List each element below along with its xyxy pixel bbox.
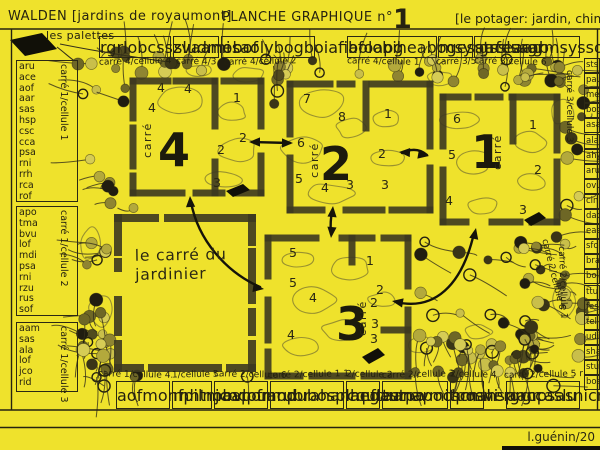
plant-code: sof bbox=[19, 305, 75, 316]
plant-code: msy bbox=[544, 38, 577, 57]
top-group-box: rgrlobcsszvaami bbox=[99, 36, 171, 58]
carre-3-cell-label: 3 bbox=[371, 316, 379, 331]
flower-dot bbox=[520, 278, 530, 288]
flower-dot bbox=[525, 321, 538, 334]
flower-dot bbox=[530, 260, 540, 270]
flower-dot bbox=[105, 198, 116, 209]
right-code-box: eae bbox=[584, 224, 600, 239]
arrowhead-icon bbox=[185, 196, 195, 207]
right-code-box: stu bbox=[584, 360, 600, 375]
right-code-box: sts bbox=[584, 58, 600, 73]
carre-3-cell-label: 4 bbox=[287, 327, 295, 342]
flower-dot bbox=[554, 77, 563, 86]
cell-caption: carré 1/cellule 2 bbox=[58, 210, 69, 287]
author-signature: l.guénin/20 bbox=[527, 430, 595, 444]
carre-1-cell-label: 6 bbox=[453, 111, 461, 126]
plant-code: obi bbox=[372, 38, 396, 57]
plant-code: rgr bbox=[521, 38, 544, 57]
plant-code: bos bbox=[307, 386, 335, 405]
flower-dot bbox=[121, 84, 130, 93]
carre-2-cell-label: 8 bbox=[338, 109, 346, 124]
flower-dot bbox=[415, 248, 428, 261]
flower-dot bbox=[270, 99, 279, 108]
carre-4-cell-label: 3 bbox=[213, 175, 221, 190]
flower-dot bbox=[521, 73, 530, 82]
right-code-box: bog bbox=[584, 103, 600, 118]
carre-3-cell-label: 5 bbox=[289, 275, 297, 290]
flower-dot bbox=[97, 349, 110, 362]
cell-caption: carré 4/cellule 4 bbox=[99, 56, 172, 68]
plant-code: css bbox=[147, 38, 172, 57]
flower-dot bbox=[135, 66, 148, 79]
bottom-group-box: aanpsasnicnurusstu bbox=[506, 381, 580, 409]
carre-2-numeral: 2 bbox=[320, 137, 352, 191]
plant-code: slu bbox=[174, 38, 197, 57]
arrowhead-icon bbox=[326, 227, 336, 239]
plant-code: hea bbox=[397, 38, 427, 57]
flower-dot bbox=[96, 339, 106, 349]
carre-4-word: carré bbox=[141, 122, 154, 158]
top-group-box: stsslurgrmsyssophfpfrovucinapo bbox=[474, 36, 580, 58]
right-code-box: asa bbox=[584, 118, 600, 133]
flower-dot bbox=[90, 293, 103, 306]
right-code-box: ahy bbox=[584, 149, 600, 164]
right-code-box: sha bbox=[584, 345, 600, 360]
contour-blob bbox=[218, 102, 246, 120]
carre-2-word: carré bbox=[308, 142, 321, 178]
carre-2-cell-label: 1 bbox=[384, 106, 392, 121]
plant-code: rca bbox=[19, 181, 75, 192]
left-group-box: aamsasalalofjcoridcarré 1/cellule 3 bbox=[16, 322, 78, 392]
flower-dot bbox=[532, 296, 544, 308]
cell-caption: carré 3/cellule 6 bbox=[474, 56, 547, 68]
flower-dot bbox=[86, 58, 98, 70]
plant-code: cqu bbox=[347, 386, 376, 405]
bottom-group-box: hmahsprgr bbox=[450, 381, 484, 409]
flower-dot bbox=[118, 96, 129, 107]
plant-code: bog bbox=[274, 38, 304, 57]
right-code-box: dad bbox=[584, 209, 600, 224]
flower-dot bbox=[102, 180, 114, 192]
plant-code: slu bbox=[498, 38, 521, 57]
flower-dot bbox=[415, 68, 424, 77]
right-code-box: sfo bbox=[584, 239, 600, 254]
flower-dot bbox=[479, 68, 489, 78]
plant-code: esa bbox=[222, 38, 250, 57]
right-code-box: mel bbox=[584, 88, 600, 103]
scan-edge-strip bbox=[502, 446, 600, 450]
right-code-box: bol bbox=[584, 269, 600, 284]
carre-1-cell-label: 2 bbox=[534, 162, 542, 177]
flower-stem bbox=[96, 377, 98, 417]
flower-dot bbox=[512, 350, 521, 359]
cell-caption: carré 1/cellule 3 bbox=[58, 326, 69, 403]
carre-4-cell-label: 1 bbox=[233, 90, 241, 105]
right-code-box: ttu bbox=[584, 285, 600, 300]
arrowhead-icon bbox=[469, 227, 480, 240]
cell-caption: carré 4/3 bbox=[176, 57, 217, 68]
carre-4-cell-label: 2 bbox=[239, 130, 247, 145]
carre-2-cell-label: 7 bbox=[303, 91, 311, 106]
right-code-box: aru bbox=[584, 164, 600, 179]
top-group-box: esaolybogboiafiafoapg bbox=[221, 36, 315, 58]
flower-dot bbox=[85, 154, 95, 164]
cell-caption: carré 1/cellule 1 bbox=[58, 64, 69, 141]
arrowhead-icon bbox=[391, 296, 403, 307]
flower-dot bbox=[273, 70, 284, 81]
plant-code: bol bbox=[348, 38, 372, 57]
right-code-box: ovu bbox=[584, 179, 600, 194]
cell-caption: carré 1/cellule 4. bbox=[98, 369, 174, 381]
flower-dot bbox=[519, 243, 530, 254]
gardener-square-label-line1: le carré du bbox=[135, 245, 227, 266]
carre-3-cell-label: 3 bbox=[370, 331, 378, 346]
plant-code: rof bbox=[19, 192, 75, 203]
cell-caption: carré 3/cellule 3 bbox=[564, 70, 574, 142]
sheet-title-text: PLANCHE GRAPHIQUE n° bbox=[222, 10, 393, 25]
flower-dot bbox=[551, 232, 562, 243]
bottom-group-box: cqulestpo bbox=[346, 381, 380, 409]
left-group-box: apotmabvulofmdipsarnirzurussofcarré 1/ce… bbox=[16, 206, 78, 316]
carre-2-cell-label: 3 bbox=[381, 177, 389, 192]
contour-blob bbox=[468, 198, 497, 214]
plant-code: cou bbox=[238, 386, 267, 405]
plant-code: sts bbox=[475, 38, 498, 57]
right-code-box: tel bbox=[584, 315, 600, 330]
flower-dot bbox=[495, 341, 506, 352]
flower-dot bbox=[456, 309, 464, 317]
cell-caption: carré 4/cellule 2 bbox=[224, 56, 297, 68]
cell-caption: carré 2/cellule 1 1 bbox=[268, 369, 349, 381]
plant-code: msy bbox=[439, 38, 472, 57]
bottom-group-box: aanapocscmvergrccaslu bbox=[382, 381, 448, 409]
plant-code: sso bbox=[577, 38, 600, 57]
flower-dot bbox=[77, 343, 90, 356]
cell-caption: carré 2/cellule 3 bbox=[382, 369, 455, 381]
plant-code: lob bbox=[123, 38, 147, 57]
flower-dot bbox=[476, 345, 486, 355]
right-code-box: ala bbox=[584, 134, 600, 149]
cell-caption: 2/cellule 4 bbox=[450, 369, 497, 380]
right-code-box: bra bbox=[584, 254, 600, 269]
flower-dot bbox=[426, 337, 435, 346]
cell-caption: carré 4/cellule 1 bbox=[347, 56, 420, 68]
flower-dot bbox=[453, 246, 466, 259]
top-group-box: msyrgrfesaab bbox=[438, 36, 473, 58]
right-code-box: pau bbox=[584, 73, 600, 88]
right-code-box: bos bbox=[584, 375, 600, 390]
subtitle: [le potager: jardin, chimères] bbox=[455, 11, 600, 26]
carre-1-cell-label: 3 bbox=[519, 202, 527, 217]
arrowhead-icon bbox=[327, 206, 337, 218]
plant-code: jco bbox=[215, 386, 238, 405]
flower-dot bbox=[83, 260, 92, 269]
carre-3-cell-label: 5 bbox=[289, 245, 297, 260]
carre-3-cell-label: 2 bbox=[370, 295, 378, 310]
flower-stem bbox=[567, 206, 582, 210]
flower-dot bbox=[129, 203, 138, 212]
carre-3-cell-label: 4 bbox=[309, 290, 317, 305]
gardener-square-label-line2: jardinier bbox=[135, 264, 227, 285]
carre-3-cell-label: 1 bbox=[366, 253, 374, 268]
plant-code: rnh bbox=[173, 386, 200, 405]
right-code-box: fes bbox=[584, 300, 600, 315]
carre-1-cell-label: 1 bbox=[529, 117, 537, 132]
flower-dot bbox=[572, 144, 583, 155]
carre-4-numeral: 4 bbox=[158, 123, 190, 177]
flower-dot bbox=[454, 339, 466, 351]
flower-dot bbox=[448, 76, 459, 87]
carre-4-cell-label: 4 bbox=[184, 81, 192, 96]
flower-dot bbox=[574, 191, 584, 201]
flower-dot bbox=[95, 307, 106, 318]
top-group-box: sludmobof bbox=[173, 36, 219, 58]
bottom-group-box: rnhtmaapomod bbox=[172, 381, 212, 409]
plant-code: boi bbox=[304, 38, 328, 57]
plant-code: psa bbox=[537, 386, 565, 405]
flower-dot bbox=[102, 244, 112, 254]
flower-dot bbox=[355, 70, 364, 79]
carre-3-word: carré bbox=[356, 300, 369, 336]
carre-4-cell-label: 4 bbox=[148, 100, 156, 115]
flower-dot bbox=[432, 72, 443, 83]
garden-plan-page: 44412234carré7816254332carré6152431carré… bbox=[0, 0, 600, 450]
carre-1-word: carré bbox=[491, 134, 504, 170]
carre-2-cell-label: 5 bbox=[295, 171, 303, 186]
carre-1-cell-label: 4 bbox=[445, 193, 453, 208]
carre-1-cell-label: 5 bbox=[448, 147, 456, 162]
plant-code: hma bbox=[451, 386, 487, 405]
flower-dot bbox=[413, 329, 426, 342]
plant-code: aan bbox=[383, 386, 413, 405]
plant-code: aof bbox=[117, 386, 142, 405]
flower-dot bbox=[393, 71, 404, 82]
contour-blob bbox=[205, 172, 242, 187]
plant-code: rgr bbox=[100, 38, 123, 57]
flower-dot bbox=[94, 171, 105, 182]
flower-dot bbox=[572, 349, 585, 362]
plant-code: oly bbox=[250, 38, 274, 57]
plant-code: apo bbox=[413, 386, 443, 405]
flower-dot bbox=[87, 359, 98, 370]
plant-code: aan bbox=[507, 386, 537, 405]
contour-blob bbox=[282, 252, 314, 267]
bottom-group-box: jcocouarubrahanhnfttu bbox=[214, 381, 268, 409]
carre-4-cell-label: 4 bbox=[157, 80, 165, 95]
gardener-square-label: le carré du jardinier bbox=[135, 245, 228, 285]
flower-dot bbox=[79, 314, 90, 325]
plant-code: afi bbox=[328, 38, 348, 57]
flower-dot bbox=[559, 209, 572, 222]
flower-dot bbox=[415, 287, 427, 299]
plant-code: mpu bbox=[271, 386, 307, 405]
left-group-box: aruaceaofaarsashspcscccapsarnirrhrcarofc… bbox=[16, 60, 78, 202]
page-title: WALDEN [jardins de royaumont] bbox=[8, 9, 232, 24]
flower-dot bbox=[484, 256, 492, 264]
flower-dot bbox=[561, 152, 574, 165]
cell-caption: carré 3/5 bbox=[436, 57, 477, 68]
carre-2-cell-label: 2 bbox=[378, 146, 386, 161]
carre-2-cell-label: 6 bbox=[297, 135, 305, 150]
bottom-group-box: mpubosplaegaunevmitposni bbox=[270, 381, 344, 409]
sheet-number: 1 bbox=[393, 4, 412, 35]
right-code-box: udi bbox=[584, 330, 600, 345]
carre-4-cell-label: 2 bbox=[217, 142, 225, 157]
flower-dot bbox=[530, 345, 539, 354]
right-code-box: cin bbox=[584, 194, 600, 209]
contour-blob bbox=[371, 150, 404, 165]
cell-caption: carré 2/cellule 5 r bbox=[504, 369, 583, 381]
bottom-group-box: aofmonfpilnobvlpfr bbox=[116, 381, 170, 409]
top-group-box: bolobiheabogesaaceaag bbox=[347, 36, 437, 58]
sheet-title: PLANCHE GRAPHIQUE n°1 bbox=[222, 10, 412, 29]
contour-blob bbox=[514, 131, 546, 152]
